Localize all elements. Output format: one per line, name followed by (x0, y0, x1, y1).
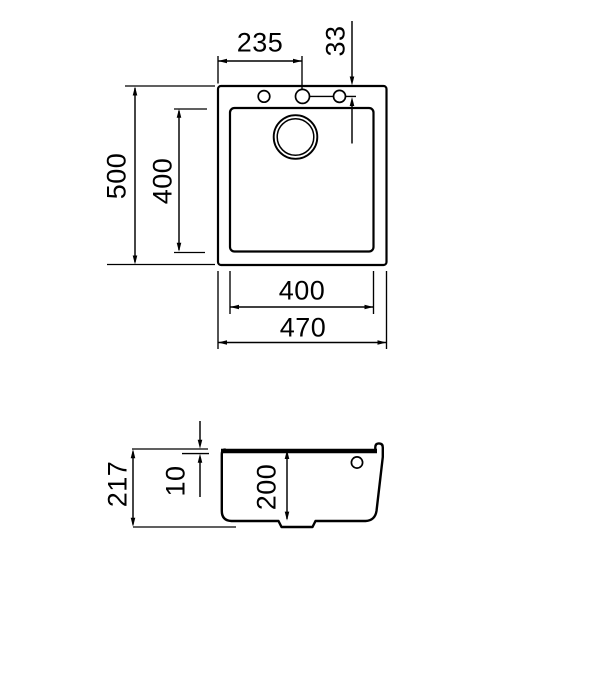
arrowhead (218, 59, 227, 64)
arrowhead (218, 340, 227, 345)
arrowhead (131, 518, 136, 527)
drawing-linework (0, 0, 600, 689)
arrowhead (230, 305, 239, 310)
sink-technical-drawing: 235 33 500 400 400 470 217 10 200 (0, 0, 600, 689)
arrowhead (293, 59, 302, 64)
tap-hole-center (296, 89, 310, 103)
arrowhead (350, 77, 355, 86)
arrowhead (177, 243, 182, 252)
drain-outer-circle (274, 115, 318, 159)
drain-inner-circle (277, 119, 314, 156)
dim-bowl-depth-label: 400 (150, 158, 177, 205)
arrowhead (131, 449, 136, 458)
tap-hole-right (334, 90, 346, 102)
dim-tap-offset-x-label: 235 (237, 30, 284, 57)
arrowhead (285, 512, 290, 521)
dim-rim-thickness-label: 10 (163, 465, 190, 496)
arrowhead (198, 454, 203, 463)
arrowhead (177, 109, 182, 118)
section-view-linework (221, 443, 383, 527)
overflow-hole (351, 457, 362, 468)
dim-overall-depth-label: 500 (104, 153, 131, 200)
sink-outer-outline (218, 86, 387, 265)
arrowhead (378, 340, 387, 345)
dim-total-height-label: 217 (105, 461, 132, 508)
dim-overall-width-label: 470 (280, 315, 327, 342)
top-view-linework (218, 86, 387, 265)
arrowhead (365, 305, 374, 310)
arrowhead (133, 87, 138, 96)
arrowhead (133, 256, 138, 265)
section-bowl-profile (222, 443, 383, 527)
tap-hole-left (258, 91, 270, 103)
dim-bowl-width-label: 400 (279, 278, 326, 305)
dim-tap-offset-y-label: 33 (323, 25, 350, 56)
arrowhead (350, 97, 355, 106)
dim-inner-depth-label: 200 (254, 464, 281, 511)
arrowhead (198, 440, 203, 449)
